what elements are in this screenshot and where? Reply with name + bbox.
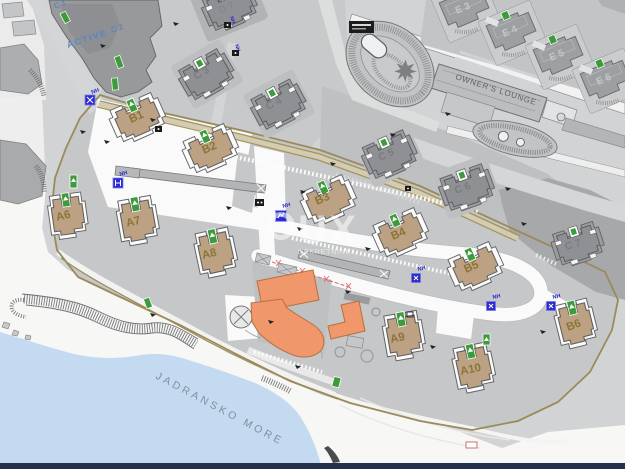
svg-text:NEKRETNINE: NEKRETNINE [298, 249, 351, 256]
svg-text:UX: UX [298, 208, 359, 252]
